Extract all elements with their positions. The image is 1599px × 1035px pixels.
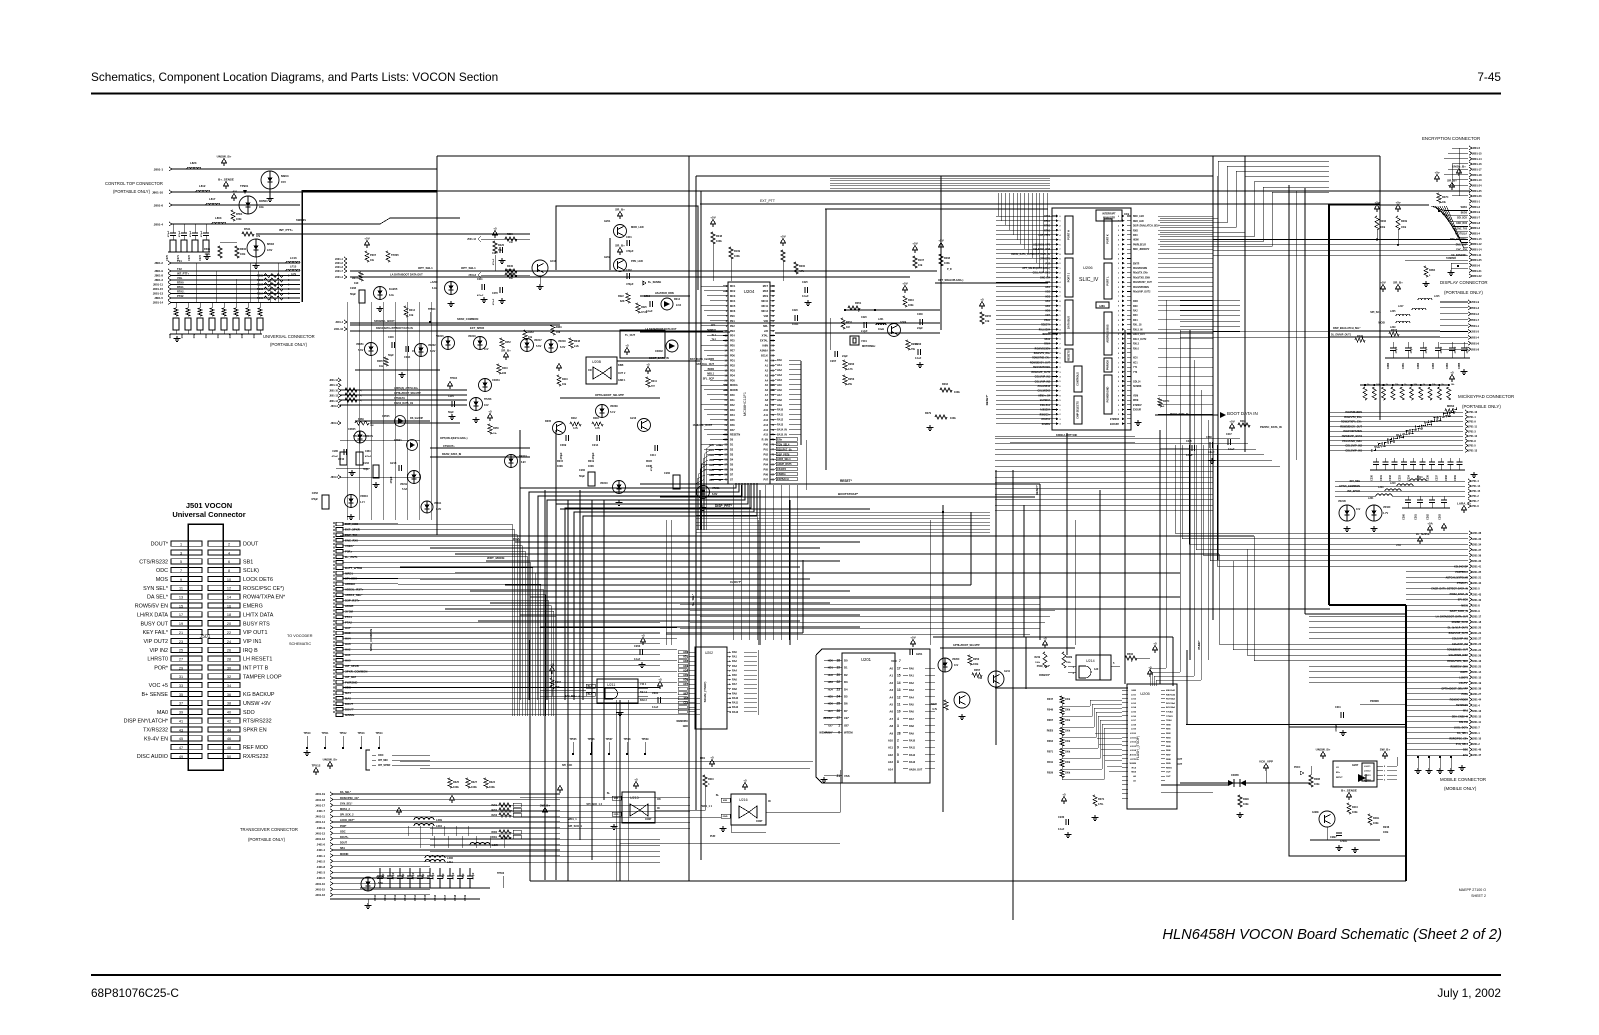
svg-text:R0n5/TX_EN+: R0n5/TX_EN+ — [1133, 273, 1149, 275]
svg-text:C2B2: C2B2 — [1417, 362, 1420, 369]
svg-text:OPT8+/BOOT_SEL/VPP: OPT8+/BOOT_SEL/VPP — [595, 393, 624, 397]
svg-text:RA9: RA9 — [909, 732, 914, 735]
svg-text:RA6: RA6 — [909, 711, 914, 714]
svg-text:BA0_SEL+_2: BA0_SEL+_2 — [565, 695, 581, 698]
svg-text:HA2: HA2 — [777, 369, 782, 372]
svg-text:C204: C204 — [448, 395, 454, 398]
svg-text:IRQ B: IRQ B — [243, 648, 258, 654]
svg-text:C202: C202 — [363, 462, 369, 465]
svg-text:P0C5C_DATA_IN: P0C5C_DATA_IN — [1170, 413, 1189, 416]
svg-text:PBSTR2LA: PBSTR2LA — [1455, 571, 1468, 574]
svg-text:55pF: 55pF — [363, 468, 369, 471]
svg-text:14: 14 — [227, 596, 231, 600]
svg-text:PE3: PE3 — [730, 330, 735, 333]
svg-text:BNC_ID4: BNC_ID4 — [1040, 276, 1051, 279]
svg-text:(MOBILE ONLY): (MOBILE ONLY) — [1444, 786, 1477, 791]
svg-text:10V: 10V — [484, 403, 489, 407]
svg-text:RX4: RX4 — [1133, 319, 1138, 322]
svg-text:DISP EN*/LATCH*: DISP EN*/LATCH* — [124, 719, 169, 725]
svg-text:R210: R210 — [502, 367, 508, 370]
svg-text:A/G15: A/G15 — [1130, 754, 1137, 757]
svg-text:C245: C245 — [1186, 440, 1192, 443]
svg-text:4.7k: 4.7k — [573, 427, 578, 430]
svg-text:100K: 100K — [557, 465, 563, 468]
svg-text:G201: G201 — [916, 652, 923, 656]
svg-text:L201: L201 — [1368, 497, 1374, 500]
svg-text:RESET*: RESET* — [1035, 485, 1039, 495]
svg-text:EECD0*: EECD0* — [823, 716, 833, 720]
svg-text:BBLOW: BBLOW — [1459, 721, 1469, 724]
svg-text:HD0: HD0 — [828, 659, 834, 663]
svg-text:HD2: HD2 — [828, 673, 834, 677]
svg-text:J701-9: J701-9 — [1468, 421, 1476, 424]
svg-text:RS_9m3/0P: RS_9m3/0P — [410, 417, 423, 420]
svg-text:J401-7: J401-7 — [317, 809, 326, 813]
svg-text:A3: A3 — [889, 688, 893, 692]
svg-text:DOUT: DOUT — [243, 542, 259, 548]
svg-text:A3N0A: A3N0A — [760, 350, 768, 353]
svg-text:LG0C1: LG0C1 — [1364, 766, 1371, 768]
svg-text:VR217: VR217 — [534, 339, 542, 342]
svg-text:Universal Connector: Universal Connector — [172, 510, 245, 519]
svg-text:IN: IN — [768, 800, 771, 803]
svg-text:SYN_SEL*: SYN_SEL* — [340, 802, 352, 805]
svg-text:J001-1: J001-1 — [335, 257, 344, 261]
svg-text:15: 15 — [897, 674, 901, 678]
svg-text:C280: C280 — [332, 450, 338, 453]
svg-text:Y201: Y201 — [861, 340, 867, 343]
svg-text:FLASH_(TSOP): FLASH_(TSOP) — [1136, 736, 1140, 760]
svg-text:9: 9 — [1118, 258, 1119, 260]
svg-text:50: 50 — [227, 755, 231, 759]
svg-text:C210: C210 — [373, 894, 377, 901]
svg-text:J401-6: J401-6 — [317, 843, 326, 847]
svg-text:C214: C214 — [592, 443, 599, 447]
svg-text:LOCK DET6: LOCK DET6 — [243, 577, 273, 583]
svg-text:CR004: CR004 — [394, 439, 402, 442]
svg-text:J801-15: J801-15 — [153, 287, 164, 291]
svg-text:4.7k: 4.7k — [595, 427, 600, 430]
svg-text:R249: R249 — [1035, 656, 1041, 659]
svg-text:+5V: +5V — [938, 239, 943, 243]
svg-text:470uF: 470uF — [1340, 840, 1348, 843]
svg-text:J701-11: J701-11 — [1468, 426, 1478, 429]
svg-text:0.1uF: 0.1uF — [646, 310, 653, 313]
svg-text:KSL24CVSP: KSL24CVSP — [1454, 565, 1468, 568]
svg-text:C247: C247 — [1226, 433, 1232, 436]
svg-text:C252: C252 — [312, 491, 319, 495]
svg-text:C270: C270 — [166, 254, 169, 260]
svg-text:470uF: 470uF — [492, 258, 495, 265]
svg-text:D6: D6 — [844, 702, 848, 706]
svg-text:VR213: VR213 — [519, 455, 527, 458]
svg-text:RORC/PSC_CE+: RORC/PSC_CE+ — [1449, 737, 1468, 740]
svg-text:R218: R218 — [593, 417, 599, 420]
svg-text:ROW4/SPKREN: ROW4/SPKREN — [1033, 366, 1050, 369]
svg-text:BUSY RTS: BUSY RTS — [243, 621, 270, 627]
svg-text:G201: G201 — [604, 219, 611, 223]
svg-text:ROWB/BUS1_OUT: ROWB/BUS1_OUT — [1447, 649, 1469, 652]
svg-text:4.7k: 4.7k — [799, 269, 805, 273]
svg-text:J801-14: J801-14 — [329, 400, 338, 403]
svg-text:9: 9 — [1060, 258, 1061, 260]
svg-text:15V: 15V — [281, 180, 286, 184]
svg-text:WRE: WRE — [1133, 400, 1139, 402]
svg-text:100k: 100k — [1065, 731, 1071, 733]
svg-text:9.04: 9.04 — [676, 303, 682, 307]
svg-text:OUT: OUT — [1177, 763, 1183, 766]
svg-text:VR209: VR209 — [610, 405, 618, 408]
svg-text:CR202: CR202 — [655, 350, 663, 353]
svg-text:27: 27 — [836, 716, 840, 720]
svg-text:PA5: PA5 — [730, 419, 735, 422]
svg-text:HA5: HA5 — [777, 384, 782, 387]
svg-text:PD84: PD84 — [1044, 319, 1050, 322]
svg-text:33: 33 — [179, 684, 183, 688]
svg-text:L217: L217 — [1398, 305, 1404, 308]
svg-text:C233: C233 — [1398, 474, 1401, 480]
svg-text:TP205: TP205 — [391, 253, 399, 257]
svg-text:P91: P91 — [764, 449, 769, 452]
svg-text:L/G14: L/G14 — [1130, 749, 1137, 752]
svg-text:5: 5 — [1060, 287, 1061, 289]
svg-text:22: 22 — [227, 631, 231, 635]
svg-text:L/G10: L/G10 — [1130, 733, 1137, 735]
svg-text:ROW5/VIP_OUT2: ROW5/VIP_OUT2 — [1031, 372, 1050, 374]
svg-text:RESETN: RESETN — [730, 434, 740, 437]
svg-text:12: 12 — [227, 587, 231, 591]
svg-text:0: 0 — [1060, 216, 1061, 218]
svg-text:L/G13: L/G13 — [1130, 746, 1137, 748]
svg-text:RA2: RA2 — [909, 682, 914, 685]
svg-text:ABTCA/LS/STOLM8: ABTCA/LS/STOLM8 — [1446, 577, 1469, 580]
svg-text:ROW0/B1SDN: ROW0/B1SDN — [1035, 348, 1051, 350]
svg-text:GND: GND — [618, 379, 624, 382]
svg-text:HD3: HD3 — [828, 680, 834, 684]
svg-text:AEM0+_B4: AEM0+_B4 — [1038, 394, 1051, 397]
svg-text:3: 3 — [1118, 325, 1119, 327]
svg-text:J501 VOCON: J501 VOCON — [186, 501, 232, 510]
svg-text:22: 22 — [836, 680, 840, 684]
svg-text:J201-36: J201-36 — [1472, 554, 1482, 557]
svg-text:100K: 100K — [588, 465, 594, 468]
svg-text:4: 4 — [1118, 328, 1119, 331]
svg-text:L817: L817 — [209, 197, 216, 201]
svg-text:J801-3: J801-3 — [1472, 226, 1481, 230]
svg-text:56pF: 56pF — [579, 474, 585, 478]
svg-text:C201: C201 — [626, 236, 632, 239]
svg-text:30: 30 — [227, 666, 231, 670]
svg-text:MODA: MODA — [730, 384, 738, 387]
svg-text:6.0V: 6.0V — [560, 345, 566, 349]
svg-text:MOBILE CONNECTOR: MOBILE CONNECTOR — [1440, 777, 1486, 782]
svg-text:1W: 1W — [588, 369, 592, 372]
svg-text:RA2: RA2 — [732, 660, 737, 663]
svg-text:DISP_PRT*: DISP_PRT* — [715, 504, 733, 508]
svg-text:1: 1 — [1118, 221, 1119, 223]
svg-text:36: 36 — [227, 693, 231, 697]
svg-text:OK: OK — [657, 798, 661, 801]
svg-text:6: 6 — [228, 560, 230, 564]
svg-text:44: 44 — [227, 728, 231, 732]
svg-text:J401-17: J401-17 — [315, 803, 325, 807]
svg-text:100k: 100k — [205, 253, 211, 256]
svg-text:L823: L823 — [190, 161, 197, 165]
svg-text:SDA_CNS2-44: SDA_CNS2-44 — [1452, 715, 1469, 718]
svg-text:HA3: HA3 — [777, 374, 782, 377]
svg-text:J801-10: J801-10 — [152, 191, 163, 195]
svg-text:470pF: 470pF — [392, 872, 395, 879]
svg-text:6.8V: 6.8V — [712, 492, 718, 496]
svg-text:HD4: HD4 — [828, 687, 834, 691]
svg-text:3: 3 — [729, 661, 730, 663]
svg-text:L205: L205 — [1390, 310, 1396, 313]
svg-text:IA8N: IA8N — [762, 345, 768, 348]
svg-text:HD6: HD6 — [828, 702, 834, 706]
svg-text:HASH_OUT: HASH_OUT — [909, 768, 923, 771]
svg-text:RA13: RA13 — [909, 761, 916, 764]
svg-text:J201-27: J201-27 — [1472, 693, 1482, 696]
svg-text:RM6: RM6 — [1166, 750, 1171, 752]
svg-text:2501-12: 2501-12 — [467, 238, 476, 241]
svg-text:C219: C219 — [463, 894, 467, 901]
svg-text:R203: R203 — [492, 815, 498, 817]
svg-text:BOOT_DATA_IN: BOOT_DATA_IN — [1450, 610, 1469, 613]
svg-text:KG BACKUP: KG BACKUP — [243, 692, 275, 698]
svg-text:R019: R019 — [588, 460, 595, 463]
svg-text:J201-21: J201-21 — [1472, 577, 1482, 580]
svg-text:J001-4: J001-4 — [335, 275, 344, 279]
svg-text:C288: C288 — [1206, 436, 1212, 439]
svg-text:19: 19 — [836, 666, 840, 670]
svg-text:U201: U201 — [861, 657, 872, 662]
svg-text:K1TE: K1TE — [1130, 759, 1136, 761]
svg-text:7: 7 — [1118, 343, 1119, 345]
svg-text:R202: R202 — [492, 810, 498, 812]
svg-text:6: 6 — [1060, 292, 1061, 294]
svg-text:1M: 1M — [846, 325, 850, 329]
svg-text:B+_SENSE: B+_SENSE — [218, 178, 234, 182]
svg-text:Schematics, Component Location: Schematics, Component Location Diagrams,… — [91, 70, 498, 84]
svg-text:OE*: OE* — [828, 723, 833, 727]
svg-text:R262: R262 — [942, 383, 949, 386]
svg-text:21: 21 — [179, 631, 183, 635]
svg-text:1: 1 — [729, 652, 730, 654]
svg-text:B+_SENSE: B+_SENSE — [1341, 789, 1357, 793]
svg-text:8: 8 — [729, 684, 730, 686]
svg-text:A12: A12 — [763, 419, 768, 422]
svg-text:MDL1: MDL1 — [707, 373, 714, 376]
svg-text:HD6: HD6 — [1045, 311, 1050, 313]
svg-text:SR_B+: SR_B+ — [615, 244, 625, 248]
svg-text:(0): (0) — [359, 395, 362, 397]
svg-text:R200: R200 — [507, 233, 513, 236]
svg-text:ENCR_DATA_DETECT_DATA_IN: ENCR_DATA_DETECT_DATA_IN — [1431, 588, 1468, 591]
svg-text:A4: A4 — [889, 695, 893, 699]
svg-text:6.7k: 6.7k — [932, 708, 937, 711]
svg-text:J401-13: J401-13 — [315, 831, 325, 835]
svg-text:56pF: 56pF — [388, 354, 394, 357]
svg-text:P90: P90 — [764, 444, 769, 447]
svg-text:V80: V80 — [764, 320, 769, 323]
svg-text:(0): (0) — [359, 390, 362, 392]
svg-text:BOV2A4: BOV2A4 — [1166, 706, 1176, 709]
svg-text:J401-9: J401-9 — [317, 826, 326, 830]
svg-text:R011: R011 — [1047, 761, 1053, 764]
svg-text:ENCRYPTION CONNECTOR: ENCRYPTION CONNECTOR — [1422, 136, 1480, 141]
svg-text:VR212: VR212 — [400, 483, 408, 486]
svg-text:7: 7 — [729, 680, 730, 682]
svg-text:A12: A12 — [888, 753, 894, 757]
svg-text:C232: C232 — [1389, 474, 1392, 480]
svg-text:J201-35: J201-35 — [1472, 571, 1482, 574]
svg-text:2: 2 — [1118, 320, 1119, 322]
svg-text:5: 5 — [1118, 381, 1119, 383]
svg-text:6: 6 — [1118, 244, 1119, 246]
svg-text:RA5: RA5 — [732, 674, 737, 677]
svg-text:COL3/SD02: COL3/SD02 — [1037, 391, 1050, 393]
svg-text:PORT L: PORT L — [1107, 276, 1110, 286]
svg-text:C218: C218 — [453, 894, 457, 901]
svg-text:ROW2/TXPA_EN+: ROW2/TXPA_EN+ — [1341, 421, 1363, 424]
svg-text:COL0/VIP_IN1: COL0/VIP_IN1 — [1035, 377, 1051, 379]
svg-text:J201-26: J201-26 — [1472, 654, 1482, 657]
svg-text:R252: R252 — [973, 657, 980, 661]
svg-text:J801-11: J801-11 — [1472, 253, 1482, 257]
svg-text:6: 6 — [1118, 339, 1119, 341]
svg-text:R048: R048 — [574, 340, 581, 343]
svg-text:R24G: R24G — [1373, 817, 1379, 820]
svg-text:R057: R057 — [974, 668, 981, 672]
svg-text:14: 14 — [897, 681, 901, 685]
svg-text:8: 8 — [1118, 301, 1119, 303]
svg-text:RTS/RS232: RTS/RS232 — [243, 719, 272, 725]
svg-text:(0): (0) — [359, 400, 362, 402]
svg-text:0: 0 — [1060, 263, 1061, 265]
svg-text:OUT: OUT — [1166, 772, 1171, 774]
svg-text:HD2: HD2 — [709, 454, 714, 457]
svg-text:SDO: SDO — [243, 710, 255, 716]
svg-text:COL2/VIP_IN2: COL2/VIP_IN2 — [1452, 643, 1469, 646]
svg-text:L/B+TX*: L/B+TX* — [1459, 682, 1468, 685]
svg-text:B0D0: B0D0 — [708, 368, 715, 371]
svg-text:13: 13 — [729, 707, 731, 709]
svg-text:+5v: +5v — [1374, 201, 1379, 205]
svg-text:8: 8 — [1060, 254, 1061, 256]
svg-text:C044: C044 — [404, 355, 411, 359]
svg-text:0.1uF: 0.1uF — [802, 295, 809, 298]
svg-text:R255: R255 — [985, 315, 992, 318]
svg-text:R279: R279 — [925, 412, 932, 415]
svg-text:MC5: MC5 — [730, 305, 736, 308]
svg-text:11: 11 — [179, 587, 183, 591]
svg-text:LH RESET1: LH RESET1 — [243, 657, 272, 663]
svg-text:5: 5 — [1060, 240, 1061, 242]
svg-text:U215: U215 — [630, 796, 639, 800]
svg-text:DISPLAY CONNECTOR: DISPLAY CONNECTOR — [1440, 280, 1488, 285]
svg-text:SPI_SCK: SPI_SCK — [1458, 599, 1469, 602]
svg-text:5: 5 — [729, 670, 730, 672]
svg-text:GND: GND — [723, 816, 728, 818]
svg-text:2: 2 — [1118, 414, 1119, 416]
svg-text:PE5: PE5 — [730, 340, 735, 343]
svg-text:COL2/SD12: COL2/SD12 — [1037, 386, 1050, 388]
svg-text:ROW3/BUSY_OUT: ROW3/BUSY_OUT — [1340, 425, 1362, 428]
svg-text:9.6V: 9.6V — [267, 248, 273, 252]
svg-text:PA1: PA1 — [730, 399, 735, 402]
svg-text:LOCK_DET*: LOCK_DET* — [340, 819, 354, 822]
svg-text:MOS: MOS — [156, 577, 169, 583]
svg-text:J801-6: J801-6 — [331, 405, 339, 408]
svg-text:RM10: RM10 — [1166, 767, 1173, 769]
svg-text:V88: V88 — [764, 315, 769, 318]
svg-text:J201-10: J201-10 — [1472, 738, 1482, 741]
svg-text:J201-11: J201-11 — [1472, 721, 1482, 724]
svg-text:CTRXBT8: CTRXBT8 — [1039, 259, 1050, 261]
svg-text:J801-22: J801-22 — [1472, 274, 1482, 278]
svg-text:2: 2 — [729, 657, 730, 659]
svg-text:100k: 100k — [1124, 214, 1130, 216]
svg-text:RA11: RA11 — [777, 414, 784, 417]
svg-text:R27C: R27C — [1442, 196, 1449, 199]
svg-text:2: 2 — [228, 542, 230, 546]
svg-text:RA4: RA4 — [732, 669, 737, 672]
svg-text:C238: C238 — [1445, 474, 1448, 480]
svg-text:1: 1 — [1060, 315, 1061, 317]
svg-text:ROW3/BUSY_OUT: ROW3/BUSY_OUT — [1030, 362, 1051, 364]
svg-text:R04B: R04B — [1314, 778, 1320, 781]
svg-text:13: 13 — [897, 688, 901, 692]
svg-text:TL1: TL1 — [712, 334, 717, 337]
svg-text:R327: R327 — [471, 781, 478, 784]
svg-text:ROSC/PSC_CE*: ROSC/PSC_CE* — [340, 797, 359, 800]
svg-text:R200: R200 — [799, 265, 806, 268]
svg-text:J801-2: J801-2 — [1472, 205, 1481, 209]
svg-text:SRMRB_BUS2: SRMRB_BUS2 — [1452, 621, 1469, 624]
svg-text:RC4: RC4 — [1132, 766, 1137, 769]
svg-text:RA8: RA8 — [909, 725, 914, 728]
svg-text:J401-10: J401-10 — [315, 882, 325, 886]
svg-text:R0M2C5+: R0M2C5+ — [1040, 414, 1051, 416]
svg-text:MD1: MD1 — [700, 757, 706, 760]
svg-text:R064: R064 — [1047, 740, 1054, 743]
svg-text:PURD*: PURD* — [1197, 640, 1201, 650]
svg-text:U20B: U20B — [592, 360, 602, 364]
svg-text:MC68HC11F1: MC68HC11F1 — [743, 392, 747, 416]
svg-text:P0CC: P0CC — [1294, 766, 1301, 769]
svg-text:OUT: OUT — [1177, 758, 1183, 761]
svg-text:RTA2_: RTA2_ — [177, 290, 186, 294]
svg-text:CR505: CR505 — [382, 415, 390, 418]
svg-text:POR*: POR* — [154, 666, 169, 672]
svg-text:ROW4/TXPA EN*: ROW4/TXPA EN* — [243, 595, 286, 601]
svg-text:R244: R244 — [1352, 806, 1358, 809]
svg-text:38: 38 — [227, 702, 231, 706]
svg-text:0: 0 — [1060, 310, 1061, 312]
svg-text:6.9V: 6.9V — [521, 462, 526, 464]
svg-text:PD2: PD2 — [730, 364, 735, 367]
svg-text:DOUT+: DOUT+ — [340, 836, 349, 839]
svg-text:R029: R029 — [1047, 772, 1054, 775]
svg-text:82K: 82K — [620, 300, 625, 303]
svg-text:7: 7 — [1060, 343, 1061, 345]
svg-text:KBVGA2: KBVGA2 — [1166, 693, 1176, 696]
svg-text:RX/RS232: RX/RS232 — [243, 754, 268, 760]
svg-text:R251: R251 — [846, 321, 853, 324]
svg-text:ADDS(A)_A/STLL0H+: ADDS(A)_A/STLL0H+ — [394, 387, 419, 390]
svg-text:8: 8 — [897, 760, 899, 764]
svg-text:P94: P94 — [764, 463, 769, 466]
